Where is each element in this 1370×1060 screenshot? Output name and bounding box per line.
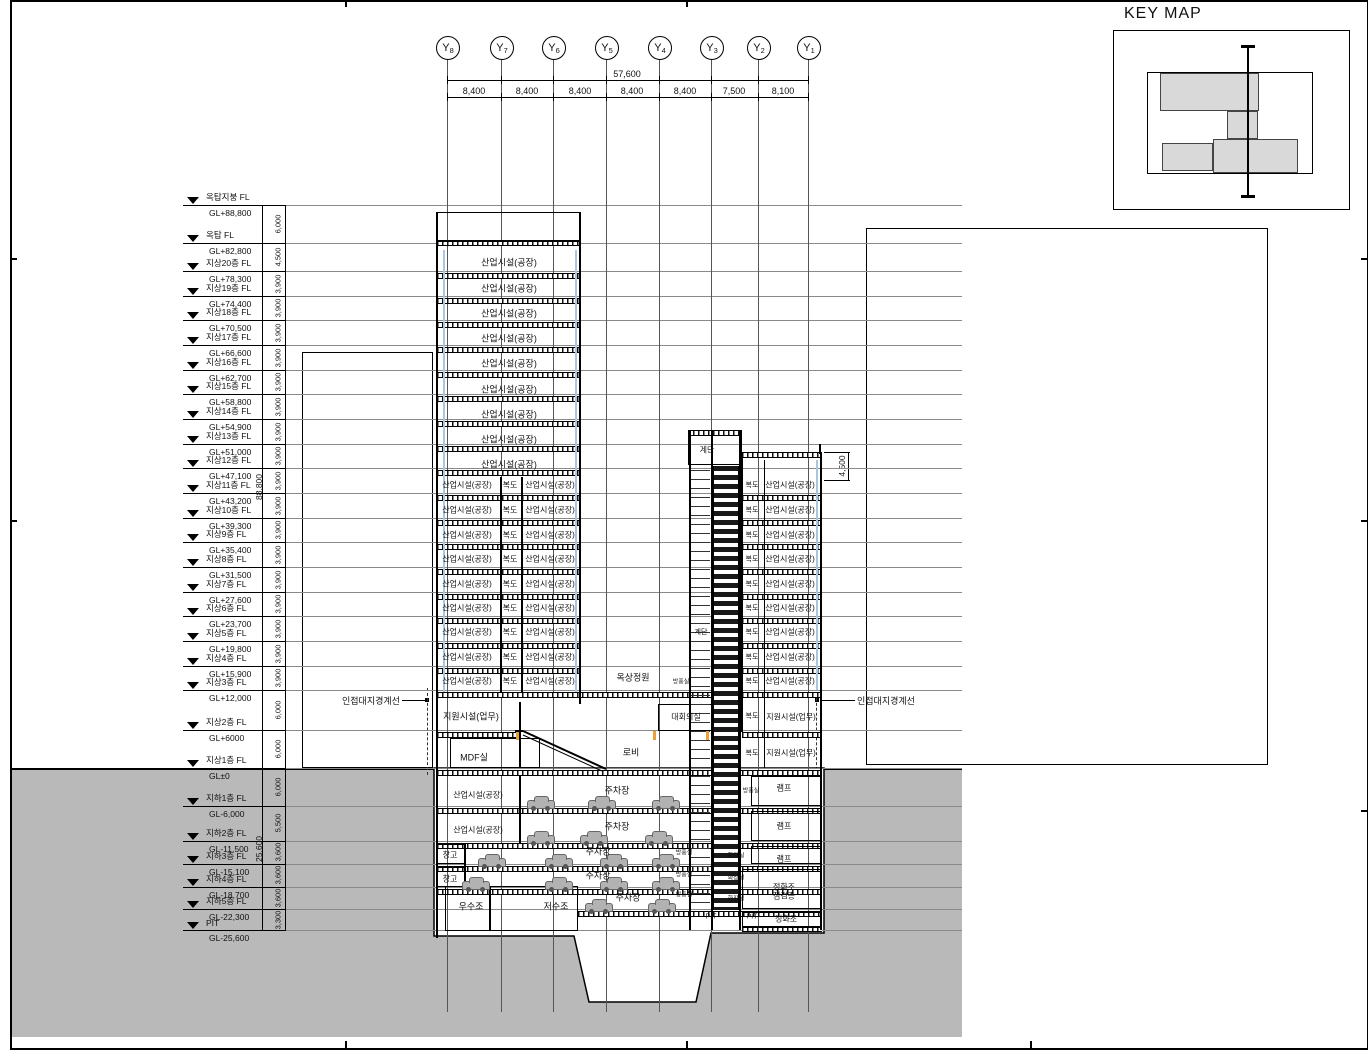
key-map: KEY MAP <box>1113 30 1350 210</box>
level-line <box>285 542 962 543</box>
level-underline <box>183 666 286 667</box>
dim-span: 8,100 <box>772 86 795 96</box>
room-label: 램프 <box>777 783 792 794</box>
level-line <box>285 243 962 244</box>
key-map-section-line <box>1247 46 1249 197</box>
dim-seg: 5,500 <box>274 814 283 833</box>
room-label: 주차장 <box>605 820 630 833</box>
dim-seg: 3,600 <box>274 889 283 908</box>
dim-seg: 3,600 <box>274 866 283 885</box>
room-label: 화장실 <box>728 873 745 882</box>
car-symbol <box>527 835 555 844</box>
room-label: 램프 <box>777 854 792 865</box>
level-underline <box>183 641 286 642</box>
dim-seg: 3,900 <box>274 472 283 491</box>
room-label: 산업시설(공장) <box>525 652 575 663</box>
room-label: 산업시설(공장) <box>525 676 575 687</box>
floor-slab <box>437 446 581 452</box>
wall <box>500 477 502 693</box>
level-underline <box>183 806 286 807</box>
room-label: 지원시설(업무) <box>443 710 499 723</box>
room-label: 화장실 <box>728 894 745 903</box>
level-name: 지상4층 FL <box>206 652 246 664</box>
level-name: 지상20층 FL <box>206 257 251 269</box>
level-underline <box>183 444 286 445</box>
room-label: 산업시설(공장) <box>442 603 492 614</box>
level-name: 지상8층 FL <box>206 553 246 565</box>
room-label: 방풍실 <box>676 870 693 879</box>
level-underline <box>183 296 286 297</box>
level-triangle-marker <box>187 760 199 767</box>
level-underline <box>183 542 286 543</box>
level-underline <box>183 370 286 371</box>
dim-seg: 3,900 <box>274 497 283 516</box>
dim-tick <box>553 93 554 101</box>
level-triangle-marker <box>187 798 199 805</box>
level-underline <box>183 592 286 593</box>
dim-tick <box>606 76 607 84</box>
room-label: 산업시설(공장) <box>442 480 492 491</box>
level-name: 지상3층 FL <box>206 676 246 688</box>
room-label: 산업시설(공장) <box>525 627 575 638</box>
floor-slab <box>437 495 581 501</box>
dim-tick <box>501 93 502 101</box>
dim-overall-below: 25,600 <box>254 836 264 862</box>
level-name: 지상5층 FL <box>206 627 246 639</box>
wall <box>521 477 523 693</box>
dim-tick <box>606 93 607 101</box>
room-label: 산업시설(공장) <box>765 627 815 638</box>
room-label: 복도 <box>503 627 518 638</box>
grid-bubble-Y8: Y8 <box>436 36 460 60</box>
car-symbol <box>580 835 608 844</box>
dim-seg: 3,300 <box>274 911 283 930</box>
room-label: 복도 <box>746 505 759 515</box>
slab-edge-marker <box>516 731 519 740</box>
level-underline <box>183 930 286 931</box>
room-label: 복도 <box>503 505 518 516</box>
grid-bubble-Y1: Y1 <box>797 36 821 60</box>
car-symbol <box>652 858 680 867</box>
level-elevation: GL-25,600 <box>209 933 249 943</box>
level-triangle-marker <box>187 722 199 729</box>
room-label: 복도 <box>746 480 759 490</box>
grid-bubble-Y4: Y4 <box>648 36 672 60</box>
room-label: PIT <box>706 914 717 921</box>
room-label: 산업시설(공장) <box>765 652 815 663</box>
car-symbol <box>652 800 680 809</box>
level-triangle-marker <box>187 901 199 908</box>
level-underline <box>183 518 286 519</box>
floor-slab <box>742 668 822 674</box>
floor-slab <box>437 298 581 304</box>
room-label: MDF실 <box>460 751 488 764</box>
room-label: 주차장 <box>605 784 630 797</box>
slab-edge-marker <box>653 731 656 740</box>
dim-tick <box>447 76 448 84</box>
level-line <box>285 592 962 593</box>
floor-slab <box>437 322 581 328</box>
level-triangle-marker <box>187 362 199 369</box>
level-underline <box>183 419 286 420</box>
level-name: 지상11층 FL <box>206 479 251 491</box>
room-label: 산업시설(공장) <box>453 825 503 836</box>
level-line <box>285 806 962 807</box>
dim-seg: 3,900 <box>274 349 283 368</box>
room-label: 산업시설(공장) <box>481 433 537 446</box>
room-label: 복도 <box>503 652 518 663</box>
room-label: 복도 <box>503 554 518 565</box>
room-label: 산업시설(공장) <box>442 505 492 516</box>
dim-seg: 3,900 <box>274 521 283 540</box>
level-underline <box>183 768 286 769</box>
room-label: 복도 <box>503 603 518 614</box>
room-label: 산업시설(공장) <box>442 676 492 687</box>
level-underline <box>183 567 286 568</box>
room-label: 산업시설(공장) <box>442 554 492 565</box>
dim-seg: 3,900 <box>274 299 283 318</box>
dim-seg: 3,900 <box>274 275 283 294</box>
room-label: 산업시설(공장) <box>765 579 815 590</box>
level-triangle-marker <box>187 235 199 242</box>
room-label: 산업시설(공장) <box>442 530 492 541</box>
level-elevation: GL±0 <box>209 771 230 781</box>
room-label: 방풍실 <box>743 786 760 795</box>
room-label: 방풍실 <box>676 848 693 857</box>
dim-tick <box>758 76 759 84</box>
room-label: 산업시설(공장) <box>442 652 492 663</box>
room-label: 산업시설(공장) <box>481 307 537 320</box>
level-triangle-marker <box>187 510 199 517</box>
dim-tick <box>711 93 712 101</box>
room-label: 주차장 <box>586 845 611 858</box>
dim-seg: 3,900 <box>274 571 283 590</box>
room-label: 복도 <box>503 530 518 541</box>
level-underline <box>183 271 286 272</box>
key-map-wing-top <box>1160 73 1259 111</box>
wall <box>519 775 521 843</box>
level-name: 지상19층 FL <box>206 282 251 294</box>
room-label: 산업시설(공장) <box>453 790 503 801</box>
room-label: 산업시설(공장) <box>481 408 537 421</box>
level-triangle-marker <box>187 633 199 640</box>
room-label: 산업시설(공장) <box>765 480 815 491</box>
dim-seg: 3,900 <box>274 447 283 466</box>
level-triangle-marker <box>187 608 199 615</box>
room-label: 복도 <box>746 652 759 662</box>
dim-seg: 3,900 <box>274 546 283 565</box>
room-label: 산업시설(공장) <box>481 383 537 396</box>
dim-seg: 3,900 <box>274 324 283 343</box>
level-name: 옥탑지붕 FL <box>206 191 250 203</box>
dim-tick <box>447 93 448 101</box>
level-triangle-marker <box>187 337 199 344</box>
car-symbol <box>600 881 628 890</box>
room-label: 복도 <box>746 676 759 686</box>
level-name: 지상18층 FL <box>206 306 251 318</box>
room-label: 정화조 <box>775 914 797 925</box>
dim-tick <box>711 76 712 84</box>
room-label: 산업시설(공장) <box>525 603 575 614</box>
floor-slab <box>742 452 822 458</box>
room-label: 창고 <box>443 874 458 885</box>
level-elevation: GL-6,000 <box>209 809 244 819</box>
wall <box>741 452 743 732</box>
floor-slab <box>437 396 581 402</box>
room-label: 산업시설(공장) <box>765 676 815 687</box>
level-name: 지상6층 FL <box>206 602 246 614</box>
floor-slab <box>437 618 581 624</box>
level-triangle-marker <box>187 922 199 929</box>
room-label: 산업시설(공장) <box>765 603 815 614</box>
dim-tick <box>553 76 554 84</box>
dim-seg: 6,000 <box>274 778 283 797</box>
level-underline <box>183 909 286 910</box>
room-label: 산업시설(공장) <box>525 579 575 590</box>
level-line <box>285 345 962 346</box>
level-name: 지상13층 FL <box>206 430 251 442</box>
level-name: 지하3층 FL <box>206 850 246 862</box>
wall <box>579 212 581 704</box>
level-line <box>285 909 962 910</box>
room-label: 복도 <box>746 554 759 564</box>
room-outline <box>688 430 742 465</box>
grid-bubble-Y6: Y6 <box>542 36 566 60</box>
level-triangle-marker <box>187 833 199 840</box>
room-label: 계단 <box>695 627 708 637</box>
room-label: 산업시설(공장) <box>442 627 492 638</box>
level-name: 옥탑 FL <box>206 229 234 241</box>
level-line <box>285 930 962 931</box>
floor-slab <box>437 470 581 476</box>
curtain-wall-glazing <box>575 250 577 692</box>
dim-seg: 3,900 <box>274 620 283 639</box>
dim-span: 8,400 <box>463 86 486 96</box>
floor-slab <box>742 569 822 575</box>
room-label: 로비 <box>623 746 640 759</box>
slab-edge-marker <box>706 731 709 740</box>
level-underline <box>183 616 286 617</box>
level-name: 지하4층 FL <box>206 873 246 885</box>
room-label: 방풍실 <box>676 890 693 899</box>
car-symbol <box>462 881 490 890</box>
room-label: 복도 <box>503 480 518 491</box>
level-underline <box>183 205 286 206</box>
level-name: PIT <box>206 918 219 928</box>
floor-slab <box>742 618 822 624</box>
level-line <box>285 518 962 519</box>
level-triangle-marker <box>187 411 199 418</box>
dim-tick <box>808 76 809 84</box>
level-triangle-marker <box>187 386 199 393</box>
room-label: 복도 <box>503 676 518 687</box>
dim-seg: 4,500 <box>274 248 283 267</box>
level-elevation: GL+12,000 <box>209 693 251 703</box>
level-triangle-marker <box>187 460 199 467</box>
level-name: 지상2층 FL <box>206 716 246 728</box>
room-label: 점검층 <box>773 891 795 902</box>
level-elevation: GL+88,800 <box>209 208 251 218</box>
room-label: 산업시설(공장) <box>481 458 537 471</box>
level-underline <box>183 887 286 888</box>
level-line <box>285 320 962 321</box>
room-outline <box>437 212 581 242</box>
level-underline <box>183 345 286 346</box>
room-label: 대회의실 <box>671 712 700 723</box>
car-symbol <box>527 800 555 809</box>
floor-slab <box>437 372 581 378</box>
level-line <box>285 370 962 371</box>
floor-slab <box>742 495 822 501</box>
level-triangle-marker <box>187 584 199 591</box>
dim-line-left-overall <box>262 205 263 930</box>
floor-slab <box>742 732 822 738</box>
level-line <box>285 419 962 420</box>
dim-seg: 3,600 <box>274 843 283 862</box>
room-label: 산업시설(공장) <box>525 554 575 565</box>
level-underline <box>183 468 286 469</box>
room-label: 산업시설(공장) <box>525 505 575 516</box>
level-line <box>285 730 962 731</box>
floor-slab <box>742 643 822 649</box>
car-symbol <box>478 858 506 867</box>
level-triangle-marker <box>187 312 199 319</box>
level-line <box>285 394 962 395</box>
level-underline <box>183 320 286 321</box>
dim-tick <box>808 93 809 101</box>
level-name: 지상15층 FL <box>206 380 251 392</box>
level-triangle-marker <box>187 856 199 863</box>
key-map-core <box>1227 111 1258 139</box>
floor-slab <box>437 668 581 674</box>
level-triangle-marker <box>187 658 199 665</box>
dim-seg: 3,900 <box>274 373 283 392</box>
room-label: 우수조 <box>459 900 484 913</box>
level-triangle-marker <box>187 197 199 204</box>
room-label: 복도 <box>746 711 759 721</box>
level-elevation: GL+82,800 <box>209 246 251 256</box>
room-label: 옥상정원 <box>616 671 649 684</box>
room-label: 저수조 <box>544 900 569 913</box>
level-name: 지상9층 FL <box>206 528 246 540</box>
floor-slab <box>437 643 581 649</box>
level-elevation: GL+6000 <box>209 733 244 743</box>
dim-seg: 3,900 <box>274 423 283 442</box>
level-triangle-marker <box>187 485 199 492</box>
wall <box>819 444 821 454</box>
room-label: 지원시설(업무) <box>766 748 816 759</box>
room-label: 주차장 <box>586 869 611 882</box>
room-label: 산업시설(공장) <box>481 282 537 295</box>
floor-slab <box>742 520 822 526</box>
level-line <box>285 666 962 667</box>
level-name: 지하5층 FL <box>206 895 246 907</box>
level-name: 지상12층 FL <box>206 454 251 466</box>
level-line <box>285 296 962 297</box>
level-underline <box>183 394 286 395</box>
car-symbol <box>545 881 573 890</box>
room-label: PIT <box>747 914 758 921</box>
key-map-title: KEY MAP <box>1124 5 1202 23</box>
room-label: 산업시설(공장) <box>481 357 537 370</box>
floor-slab <box>437 544 581 550</box>
level-line <box>285 641 962 642</box>
room-label: 산업시설(공장) <box>481 332 537 345</box>
dim-seg: 6,000 <box>274 740 283 759</box>
level-line <box>285 768 962 769</box>
level-name: 지상17층 FL <box>206 331 251 343</box>
elevator-shaft <box>713 466 739 910</box>
car-symbol <box>585 903 613 912</box>
key-map-wing-bottom-left <box>1162 143 1213 171</box>
wall <box>436 212 438 938</box>
level-line <box>285 567 962 568</box>
dim-span: 8,400 <box>516 86 539 96</box>
room-label: 산업시설(공장) <box>481 256 537 269</box>
room-label: 복도 <box>746 530 759 540</box>
room-label: 복도 <box>746 579 759 589</box>
level-triangle-marker <box>187 288 199 295</box>
level-line <box>285 205 962 206</box>
room-label: 산업시설(공장) <box>765 505 815 516</box>
level-line <box>285 444 962 445</box>
level-name: 지하2층 FL <box>206 827 246 839</box>
level-name: 지하1층 FL <box>206 792 246 804</box>
floor-slab <box>742 594 822 600</box>
car-symbol <box>588 800 616 809</box>
level-name: 지상14층 FL <box>206 405 251 417</box>
dim-line-left-segs <box>285 205 286 930</box>
car-symbol <box>648 903 676 912</box>
level-underline <box>183 493 286 494</box>
floor-slab <box>437 520 581 526</box>
floor-slab <box>437 594 581 600</box>
level-underline <box>183 864 286 865</box>
level-line <box>285 271 962 272</box>
level-underline <box>183 690 286 691</box>
dim-seg: 6,000 <box>274 215 283 234</box>
room-label: 화장실 <box>728 851 745 860</box>
dim-tick <box>659 76 660 84</box>
dim-seg: 3,900 <box>274 595 283 614</box>
key-map-section-tick-bottom <box>1241 195 1255 198</box>
key-map-section-tick-top <box>1241 45 1255 48</box>
level-underline <box>183 730 286 731</box>
dim-seg: 3,900 <box>274 645 283 664</box>
level-triangle-marker <box>187 879 199 886</box>
floor-slab <box>437 421 581 427</box>
curtain-wall-glazing <box>816 460 818 690</box>
room-label: 산업시설(공장) <box>525 480 575 491</box>
level-underline <box>183 841 286 842</box>
car-symbol <box>600 858 628 867</box>
room-label: 산업시설(공장) <box>442 579 492 590</box>
room-label: 램프 <box>777 821 792 832</box>
key-map-wing-bottom <box>1213 139 1298 173</box>
dim-span: 8,400 <box>621 86 644 96</box>
level-name: 지상1층 FL <box>206 754 246 766</box>
level-line <box>285 690 962 691</box>
section-drawing-sheet: Y8Y7Y6Y5Y4Y3Y2Y1 산업시설(공장)산업시설(공장)산업시설(공장… <box>0 0 1370 1060</box>
room-label: 복도 <box>503 579 518 590</box>
floor-slab <box>437 347 581 353</box>
level-line <box>285 616 962 617</box>
grid-bubble-Y5: Y5 <box>595 36 619 60</box>
level-name: 지상10층 FL <box>206 504 251 516</box>
floor-slab <box>437 273 581 279</box>
floor-slab <box>742 544 822 550</box>
dim-seg: 3,900 <box>274 669 283 688</box>
